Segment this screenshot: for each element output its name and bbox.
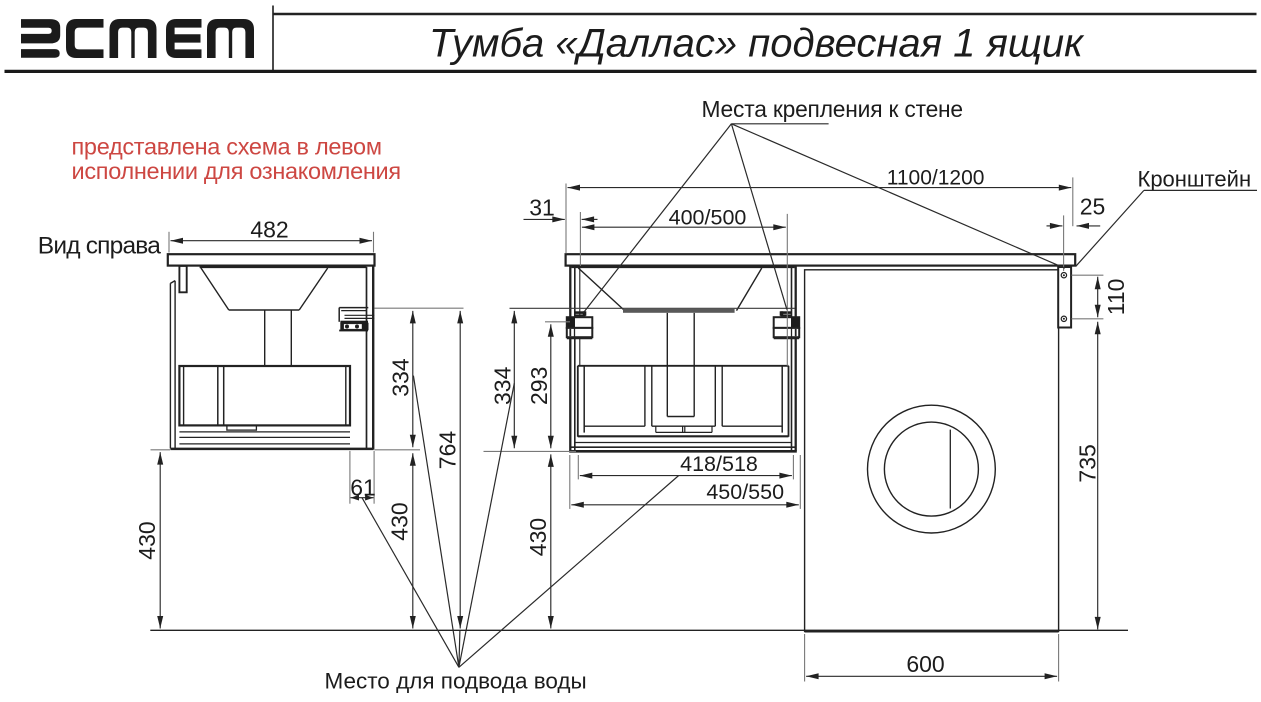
svg-text:430: 430 — [387, 502, 413, 540]
svg-text:430: 430 — [134, 521, 160, 559]
svg-text:450/550: 450/550 — [706, 480, 784, 504]
svg-text:334: 334 — [388, 358, 414, 397]
svg-text:293: 293 — [526, 367, 552, 405]
svg-text:25: 25 — [1080, 194, 1106, 220]
svg-text:600: 600 — [906, 651, 944, 677]
svg-text:1100/1200: 1100/1200 — [887, 167, 985, 190]
svg-text:400/500: 400/500 — [669, 206, 747, 230]
svg-text:Вид справа: Вид справа — [38, 233, 161, 260]
svg-text:735: 735 — [1075, 444, 1101, 482]
svg-text:представлена схема в левом: представлена схема в левом — [72, 134, 382, 160]
svg-text:430: 430 — [525, 518, 551, 556]
svg-text:110: 110 — [1103, 279, 1129, 316]
svg-text:Кронштейн: Кронштейн — [1138, 166, 1252, 191]
svg-text:Место для подвода воды: Место для подвода воды — [325, 669, 587, 694]
svg-text:418/518: 418/518 — [680, 452, 758, 476]
svg-text:764: 764 — [435, 431, 461, 470]
svg-text:Тумба «Даллас» подвесная 1 ящи: Тумба «Даллас» подвесная 1 ящик — [429, 22, 1085, 66]
svg-text:61: 61 — [350, 475, 376, 501]
svg-text:334: 334 — [490, 366, 516, 405]
svg-text:482: 482 — [250, 217, 288, 243]
svg-text:исполнении для ознакомления: исполнении для ознакомления — [72, 158, 401, 184]
svg-text:Места крепления к стене: Места крепления к стене — [702, 96, 963, 122]
svg-text:31: 31 — [529, 195, 555, 221]
